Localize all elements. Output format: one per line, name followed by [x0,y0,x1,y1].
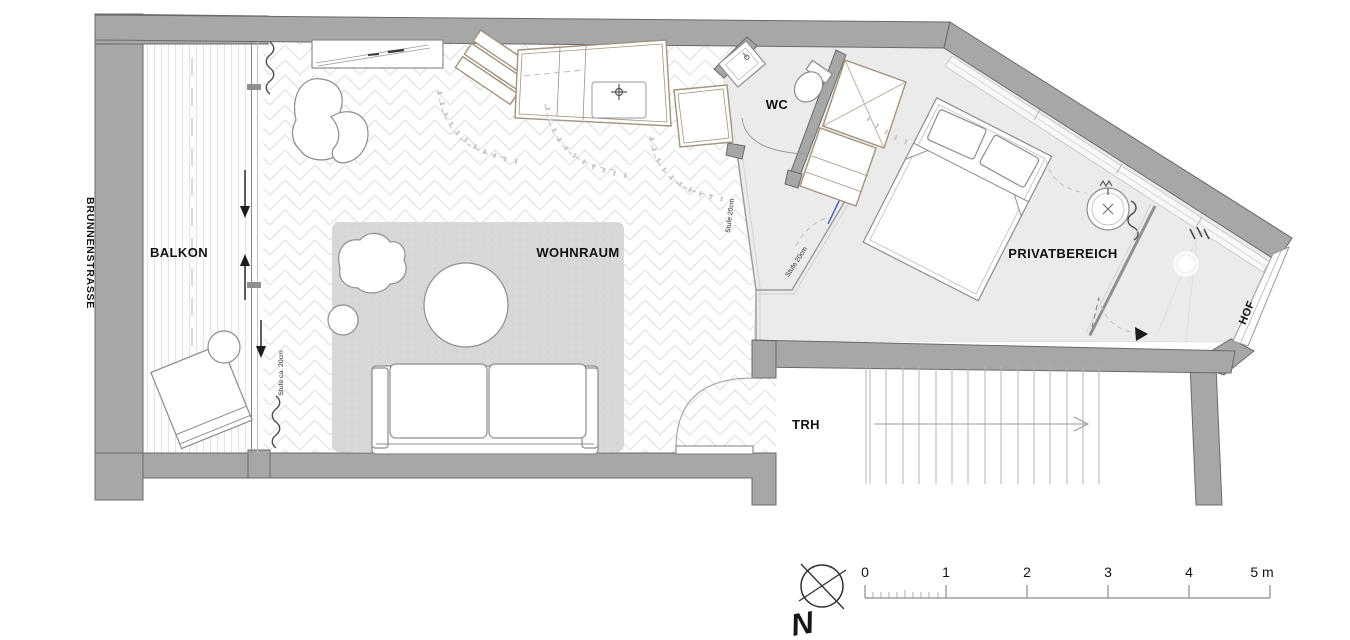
room-label-living: WOHNRAUM [536,245,619,260]
floor-plan-drawing: BRUNNENSTRASSE BALKON WOHNRAUM WC PRIVAT… [0,0,1350,640]
balcony-side-table [208,331,240,363]
room-label-wc: WC [766,97,789,112]
coffee-table [424,263,508,347]
floor-plan-page: BRUNNENSTRASSE BALKON WOHNRAUM WC PRIVAT… [0,0,1350,640]
scale-tick-label: 0 [861,564,869,580]
street-label: BRUNNENSTRASSE [84,197,96,309]
room-label-balcony: BALKON [150,245,208,260]
wall-trh-top [752,340,1235,373]
side-table [328,305,358,335]
scale-bar: 0 1 2 3 4 5 m [861,564,1274,598]
wall-pier-glass [248,450,270,478]
north-label: N [788,604,817,640]
scale-tick-label: 2 [1023,564,1031,580]
north-arrow-icon: N [788,564,846,640]
glass-junction [247,84,261,90]
shower-head-icon [1177,255,1195,273]
room-label-trh: TRH [792,417,820,432]
wall-left [95,14,143,500]
scale-tick-label: 3 [1104,564,1112,580]
sofa [372,364,598,454]
stairwell [866,366,1099,484]
wall-bottom [143,453,776,505]
door-leaf [676,446,753,454]
scale-tick-label: 4 [1185,564,1193,580]
scale-tick-label: 5 m [1250,564,1273,580]
wall-door-jamb [752,340,776,378]
scale-ticks [865,585,1270,598]
step-note-balcony: Stufe ca. 20cm [278,350,285,396]
scale-tick-label: 1 [942,564,950,580]
wall-trh-right [1190,364,1222,505]
scale-minor-ticks [873,590,938,598]
glass-junction [247,282,261,288]
room-label-private: PRIVATBEREICH [1008,246,1117,261]
